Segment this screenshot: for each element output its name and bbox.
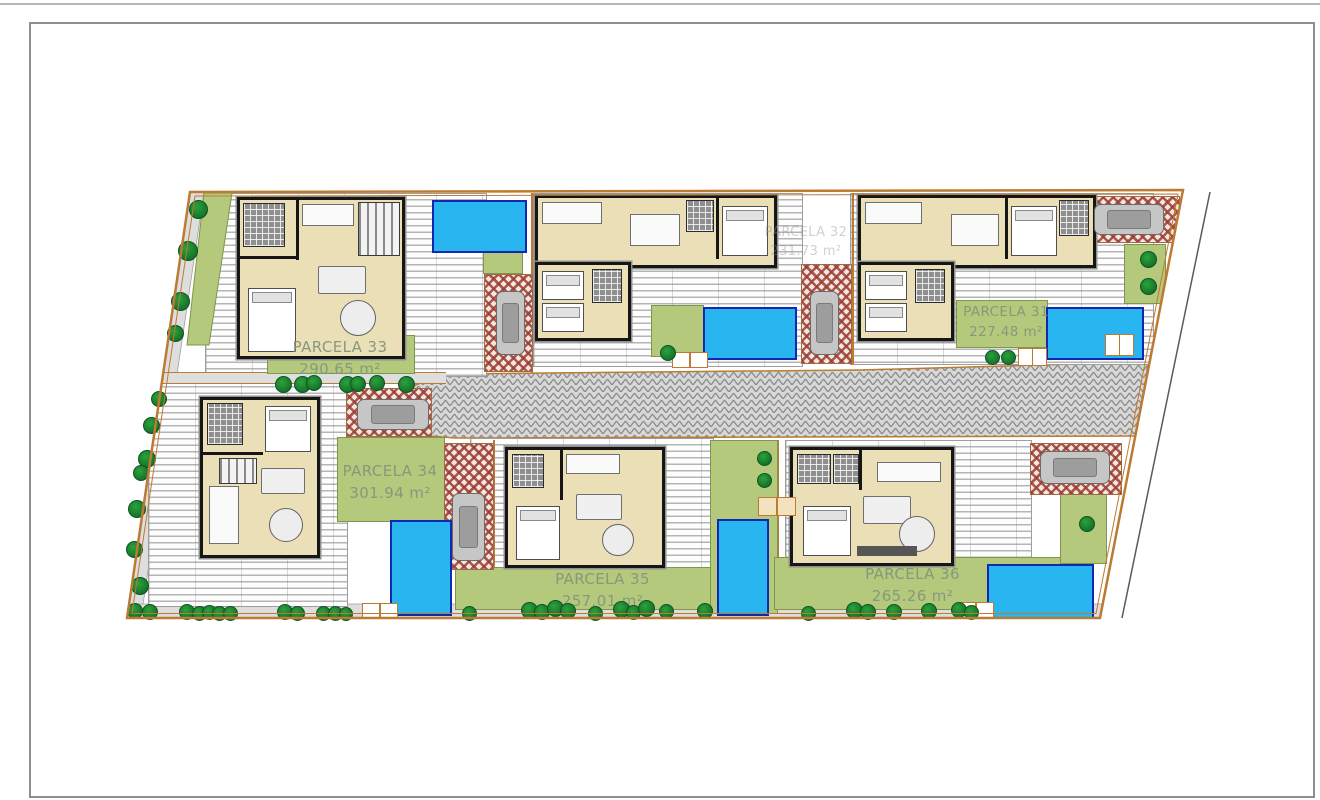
parcel-label-34: PARCELA 34 301.94 m² [320,461,460,505]
interior-wall [240,256,296,259]
stairs [358,202,400,256]
kitchen-counter [865,202,922,224]
car-icon [496,291,525,355]
plan-sheet: PARCELA 31 227.48 m² PARCELA 32 231.73 m… [0,0,1320,800]
pool-villa-b [703,307,797,360]
parcel-label-32: PARCELA 32 231.73 m² [750,224,862,262]
parcel-name: PARCELA 35 [555,570,650,588]
entrance-gate [380,603,398,619]
kitchen-island [877,462,941,482]
entrance-gate [672,352,690,368]
sheet-top-rule [0,3,1320,5]
parcel-label-33: PARCELA 33 290.65 m² [260,337,420,381]
kitchen-counter [566,454,620,474]
lawn-patch-a [483,250,523,274]
lawn-right-strip [1124,244,1166,304]
building-villa-e [505,447,665,568]
entrance-gate [1105,334,1120,356]
kitchen-counter [302,204,354,226]
bathroom [915,269,945,303]
bathroom [797,454,831,484]
pool-villa-a [432,200,527,253]
car-icon [357,399,429,430]
bathroom [686,200,714,232]
bed [803,506,851,556]
parcel-area: 265.26 m² [872,587,953,605]
entrance-gate [758,497,777,516]
kitchen-counter [209,486,239,544]
bed [265,406,311,452]
building-villa-c-main [858,195,1096,268]
parcel-name: PARCELA 33 [293,338,388,356]
lawn-left-strip [187,193,232,345]
building-villa-b-wing [535,262,631,341]
parcel-area: 257.01 m² [562,592,643,610]
stairs [219,458,257,484]
pool-villa-d [390,520,452,616]
bathroom [243,203,285,247]
entrance-gate [1018,348,1033,366]
building-villa-c-wing [858,262,954,341]
interior-wall [1005,198,1008,259]
dining-table [630,214,680,246]
parcel-label-36: PARCELA 36 265.26 m² [830,564,995,608]
parcel-area: 301.94 m² [349,484,430,502]
interior-wall [203,452,263,455]
entrance-gate [1032,348,1047,366]
bathroom [833,454,859,484]
sofa [261,468,305,494]
round-table [340,300,376,336]
round-table [602,524,634,556]
sofa [318,266,366,294]
bathroom [512,454,544,488]
parcel-area: 290.65 m² [299,360,380,378]
pool-villa-e [717,519,769,616]
entrance-gate [1119,334,1134,356]
building-villa-d [200,397,320,558]
parcel-label-31: PARCELA 31 227.48 m² [950,303,1062,342]
entrance-gate [690,352,708,368]
parcel-name: PARCELA 32 [765,225,848,240]
parcel-area: 227.48 m² [969,324,1043,340]
lawn-villa-b [651,305,704,357]
car-icon [1040,451,1110,484]
tv-bench [857,546,917,556]
parcel-label-35: PARCELA 35 257.01 m² [520,569,685,613]
dining-table [951,214,999,246]
building-villa-f [790,447,954,566]
pool-villa-f [987,564,1094,622]
parcel-name: PARCELA 31 [963,304,1049,320]
parcel-area: 231.73 m² [770,244,841,259]
bed [542,303,584,332]
interior-wall [716,198,719,259]
parcel-name: PARCELA 34 [343,462,438,480]
round-table [269,508,303,542]
bed [516,506,560,560]
bed [1011,206,1057,256]
kitchen-counter [542,202,602,224]
interior-wall [859,450,862,490]
building-villa-a [237,197,405,359]
parcel-name: PARCELA 36 [865,565,960,583]
lawn-villa-f-side [1060,494,1107,564]
sofa [576,494,622,520]
bed [865,271,907,300]
bathroom [1059,200,1089,236]
interior-wall [296,200,299,260]
entrance-gate [777,497,796,516]
bed [865,303,907,332]
building-villa-b-main [535,195,777,268]
interior-wall [560,450,563,500]
bathroom [592,269,622,303]
car-icon [1094,204,1164,235]
car-icon [810,291,839,355]
entrance-gate [362,603,380,619]
bathroom [207,403,243,445]
bed [542,271,584,300]
